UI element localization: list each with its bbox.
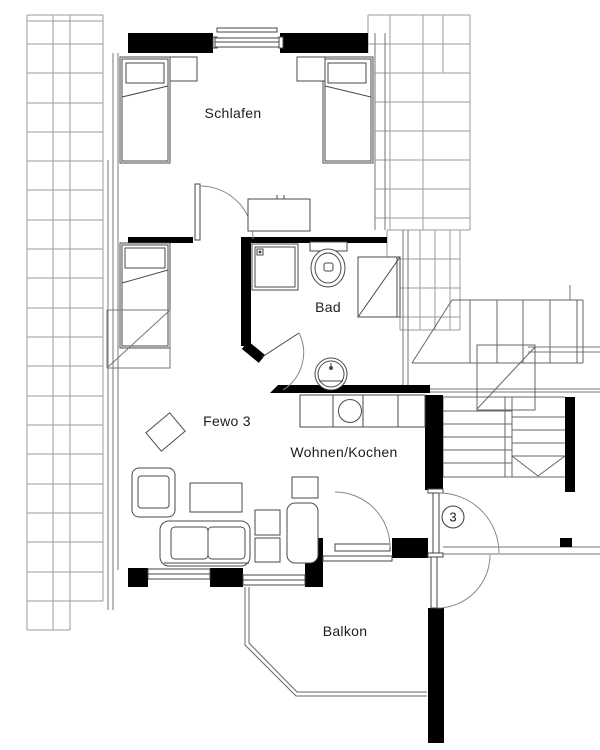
armchair [132, 468, 175, 517]
toilet [310, 242, 347, 287]
side-table-3 [255, 538, 280, 562]
shower [252, 244, 298, 290]
staircase-landing [477, 345, 535, 410]
bathroom-door [262, 333, 304, 390]
bedroom-door [195, 184, 253, 240]
room-label-schlafen: Schlafen [205, 105, 262, 121]
washbasin [315, 358, 347, 390]
sideboard [248, 195, 310, 231]
nightstand-1 [170, 57, 197, 81]
bed-1 [120, 57, 170, 163]
exterior-door [431, 555, 490, 608]
wall-angled-cap [245, 345, 262, 359]
room-label-bad: Bad [315, 299, 341, 315]
wall-angled-end [270, 385, 278, 393]
staircase-upper-flight [412, 300, 583, 363]
roof-grid-top-right [368, 15, 470, 230]
sofa [160, 521, 250, 566]
room-label-balkon: Balkon [323, 623, 368, 639]
bed-3 [120, 243, 170, 348]
side-table-1 [292, 477, 318, 498]
rug [146, 413, 185, 451]
kitchen-counter [300, 395, 425, 427]
window-top [213, 28, 283, 48]
staircase-lower-flight [443, 397, 565, 477]
balcony-railing [245, 587, 427, 696]
floorplan-page: Schlafen Bad Fewo 3 Wohnen/Kochen Balkon… [0, 0, 600, 750]
room-label-wohnen-kochen: Wohnen/Kochen [290, 444, 397, 460]
bed-2 [323, 57, 373, 163]
side-table-2 [255, 510, 280, 535]
balcony-door [323, 492, 392, 561]
roof-grid-left [27, 15, 103, 630]
window-bottom-left [148, 569, 210, 579]
room-label-fewo: Fewo 3 [203, 413, 251, 429]
nightstand-2 [297, 57, 325, 81]
window-bottom-mid [243, 575, 305, 585]
coffee-table [190, 483, 242, 512]
floorplan-drawing [0, 0, 600, 750]
bathroom-wardrobe [358, 257, 400, 317]
cabinet [287, 503, 318, 563]
unit-number-badge: 3 [442, 506, 465, 529]
